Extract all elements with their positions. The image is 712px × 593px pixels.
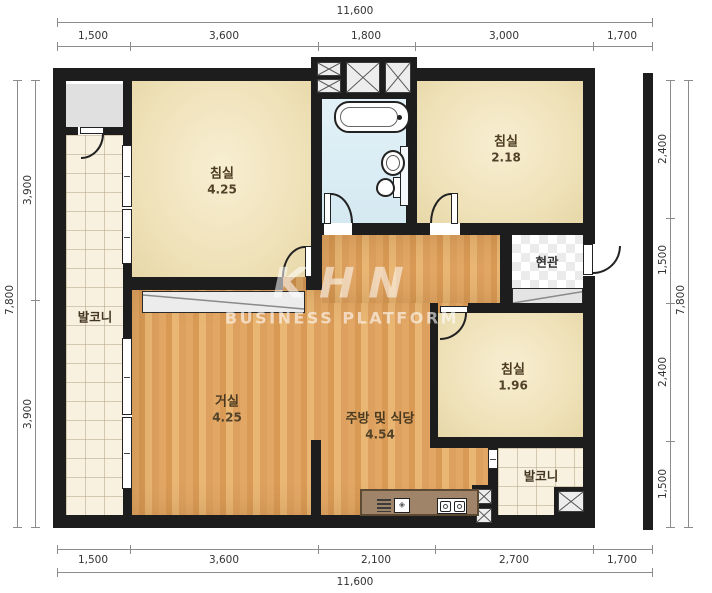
dim-left-seg-0: 3,900 — [22, 175, 34, 205]
dim-top-seg-1: 3,600 — [209, 30, 239, 42]
dish-rack-icon — [377, 499, 391, 512]
wall-bedroom3-bottom — [430, 437, 595, 448]
dim-tick — [415, 42, 416, 51]
dim-line-top-total — [57, 22, 653, 23]
room-area: 4.25 — [212, 411, 242, 426]
dim-top-seg-4: 1,700 — [607, 30, 637, 42]
wall-balcony-right-c — [123, 489, 132, 515]
floor-plan-canvas: 11,600 1,500 3,600 1,800 3,000 1,700 1,5… — [0, 0, 712, 593]
wall-kitchen-top-c — [460, 223, 595, 235]
dim-tick — [57, 568, 58, 577]
dim-bottom-seg-2: 2,100 — [361, 554, 391, 566]
wall-entrance-left — [500, 228, 512, 308]
wall-kitchen-top-a — [311, 223, 324, 235]
room-name: 주방 및 식당 — [346, 411, 415, 427]
dim-left-total: 7,800 — [4, 285, 16, 315]
room-label-entrance: 현관 — [535, 252, 558, 271]
dim-line-left-segments — [35, 80, 36, 528]
watermark-logo: KHN — [267, 259, 422, 308]
room-name: 침실 — [498, 362, 528, 378]
room-name: 침실 — [491, 134, 521, 150]
dim-tick — [593, 545, 594, 554]
sink-inner — [386, 155, 400, 171]
wall-exterior-bottom — [53, 515, 595, 528]
dim-bottom-seg-0: 1,500 — [78, 554, 108, 566]
door-leaf-entrance — [583, 244, 593, 275]
dim-tick — [31, 80, 40, 81]
dim-line-top-segments — [57, 46, 653, 47]
dim-tick — [130, 42, 131, 51]
sink-icon — [381, 150, 405, 176]
dim-line-right-segments — [670, 80, 671, 528]
dim-left-seg-1: 3,900 — [22, 399, 34, 429]
dim-tick — [666, 218, 675, 219]
wall-exterior-left — [53, 68, 66, 528]
bathtub-inner — [340, 107, 398, 127]
stove-burner — [440, 501, 451, 512]
dim-tick — [13, 527, 22, 528]
stove-burner — [454, 501, 465, 512]
shoe-cabinet — [512, 288, 583, 304]
dim-line-right-total — [688, 80, 689, 528]
room-label-bedroom-1: 침실 4.25 — [207, 166, 237, 197]
dim-tick — [57, 42, 58, 51]
dim-top-seg-2: 1,800 — [351, 30, 381, 42]
duct-x-icon — [385, 62, 411, 93]
dim-right-total: 7,800 — [675, 285, 687, 315]
dim-tick — [652, 568, 653, 577]
dim-bottom-total: 11,600 — [337, 576, 374, 588]
window — [122, 338, 132, 415]
dim-tick — [435, 545, 436, 554]
dim-bottom-seg-1: 3,600 — [209, 554, 239, 566]
room-label-bedroom-3: 침실 1.96 — [498, 362, 528, 393]
watermark-subtitle: BUSINESS PLATFORM — [225, 309, 459, 328]
bathtub-drain — [397, 115, 402, 120]
room-area: 2.18 — [491, 151, 521, 166]
duct-x-icon — [317, 79, 341, 93]
door-arc-entrance — [593, 246, 621, 274]
wall-bedroom3-top-b — [468, 303, 595, 313]
room-area: 4.54 — [346, 428, 415, 443]
dim-tick — [13, 80, 22, 81]
dim-right-seg-3: 1,500 — [657, 469, 669, 499]
room-label-living: 거실 4.25 — [212, 394, 242, 425]
duct-x-icon — [346, 62, 380, 93]
dim-top-total: 11,600 — [337, 5, 374, 17]
window — [122, 417, 132, 489]
wall-balcony-top-a — [53, 127, 78, 135]
dim-tick — [593, 42, 594, 51]
dim-tick — [318, 42, 319, 51]
door-leaf-bedroom2 — [451, 193, 458, 224]
wall-balcony-right-a — [123, 81, 132, 145]
door-leaf-bathroom — [324, 193, 331, 224]
bathtub-icon — [334, 101, 410, 133]
window — [122, 209, 132, 264]
room-area: 4.25 — [207, 183, 237, 198]
wall-bedroom1-bottom-a — [123, 277, 283, 290]
dim-line-bottom-total — [57, 572, 653, 573]
door-leaf-balcony — [80, 127, 104, 134]
wall-living-kitchen-stub — [311, 440, 321, 515]
dim-tick — [57, 545, 58, 554]
wall-kitchen-top-b — [352, 223, 430, 235]
room-label-kitchen: 주방 및 식당 4.54 — [346, 411, 415, 442]
dim-bottom-seg-4: 1,700 — [607, 554, 637, 566]
dim-tick — [666, 441, 675, 442]
dim-tick — [57, 18, 58, 27]
dim-tick — [684, 527, 693, 528]
dim-tick — [666, 527, 675, 528]
dim-right-seg-1: 1,500 — [657, 245, 669, 275]
room-name: 침실 — [207, 166, 237, 182]
wall-exterior-right-upper — [583, 68, 595, 244]
toilet-icon — [376, 178, 395, 197]
dim-tick — [666, 80, 675, 81]
room-label-bedroom-2: 침실 2.18 — [491, 134, 521, 165]
dim-top-seg-0: 1,500 — [78, 30, 108, 42]
kitchen-sink-icon: ◈ — [394, 498, 410, 513]
room-label-balcony-left: 발코니 — [78, 307, 113, 326]
room-label-balcony-bottom: 발코니 — [524, 466, 559, 485]
diagonal-line — [513, 290, 582, 304]
dim-right-seg-0: 2,400 — [657, 134, 669, 164]
dim-bottom-seg-3: 2,700 — [499, 554, 529, 566]
stove-icon — [437, 498, 467, 514]
dim-tick — [666, 303, 675, 304]
dim-line-bottom-segments — [57, 549, 653, 550]
dim-tick — [652, 545, 653, 554]
dim-right-seg-2: 2,400 — [657, 357, 669, 387]
site-boundary-bar — [643, 73, 653, 530]
dim-tick — [684, 80, 693, 81]
room-area: 1.96 — [498, 379, 528, 394]
dim-top-seg-3: 3,000 — [489, 30, 519, 42]
wall-balcony-top-b — [104, 127, 123, 135]
dim-line-left-total — [17, 80, 18, 528]
dim-tick — [31, 300, 40, 301]
duct-x-icon — [317, 62, 341, 76]
window — [488, 449, 498, 469]
storage-closet-top-left — [66, 84, 123, 127]
room-name: 거실 — [212, 394, 242, 410]
dim-tick — [31, 527, 40, 528]
dim-tick — [652, 18, 653, 27]
dim-tick — [130, 545, 131, 554]
duct-x-icon — [558, 491, 584, 512]
dim-tick — [318, 545, 319, 554]
dim-tick — [652, 42, 653, 51]
window — [122, 145, 132, 207]
wall-balcony-right-b — [123, 264, 132, 338]
